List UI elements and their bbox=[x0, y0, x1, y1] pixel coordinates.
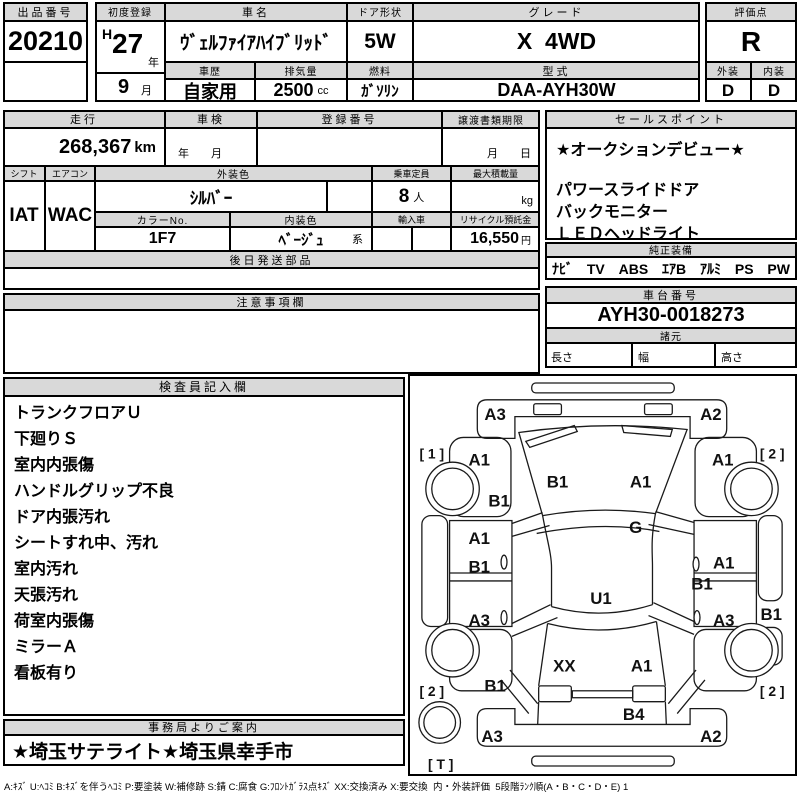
recycle-deposit-value: 16,550円 bbox=[451, 227, 540, 251]
inspector-note: ドア内張汚れ bbox=[14, 505, 394, 531]
spec-length-label: 長さ bbox=[551, 349, 573, 365]
model-code-value: DAA-AYH30W bbox=[413, 79, 700, 102]
exterior-color-empty-cell bbox=[327, 181, 372, 212]
score-value: R bbox=[705, 21, 797, 62]
displacement-number: 2500 bbox=[273, 80, 313, 101]
inspector-note: ミラーＡ bbox=[14, 635, 394, 661]
spare-tire-label: [ T ] bbox=[428, 756, 453, 772]
recycle-fee-unit: 円 bbox=[521, 232, 531, 247]
wheel-rear-right-inner bbox=[731, 629, 773, 671]
displacement-value: 2500cc bbox=[255, 79, 347, 102]
equipment-item: TV bbox=[587, 261, 605, 277]
lot-number-empty-cell bbox=[3, 62, 88, 102]
damage-label: A3 bbox=[484, 405, 505, 424]
color-no-value: 1F7 bbox=[95, 227, 230, 251]
transfer-deadline-label: 譲渡書類期限 bbox=[442, 110, 540, 128]
car-name-label: 車名 bbox=[165, 2, 347, 21]
year-value: 27 bbox=[112, 28, 143, 60]
front-bumper-detail-left bbox=[534, 404, 562, 415]
damage-label: A2 bbox=[700, 405, 722, 424]
score-label: 評価点 bbox=[705, 2, 797, 21]
damage-label: A2 bbox=[700, 727, 722, 746]
windshield bbox=[519, 426, 687, 516]
spec-width-label: 幅 bbox=[638, 349, 649, 365]
history-value: 自家用 bbox=[165, 79, 255, 102]
lot-number-value: 20210 bbox=[3, 21, 88, 62]
chassis-number-value: AYH30-0018273 bbox=[545, 303, 797, 328]
mileage-value: 268,367km bbox=[3, 128, 165, 166]
legend-text: A:ｷｽﾞ U:ﾍｺﾐ B:ｷｽﾞを伴うﾍｺﾐ P:要塗装 W:補修跡 S:錆 … bbox=[4, 779, 796, 793]
inspector-label: 検査員記入欄 bbox=[3, 377, 405, 396]
damage-label: G bbox=[629, 518, 642, 537]
model-code-label: 型式 bbox=[413, 62, 700, 79]
spec-height-label: 高さ bbox=[721, 349, 743, 365]
capacity-label: 乗車定員 bbox=[372, 166, 451, 181]
damage-label: A3 bbox=[469, 611, 491, 630]
capacity-number: 8 bbox=[399, 186, 410, 208]
equipment-item: ｴｱB bbox=[662, 259, 686, 279]
exterior-color-value: ｼﾙﾊﾞｰ bbox=[95, 181, 327, 212]
tail-light-right bbox=[633, 686, 666, 702]
sales-point: ＬＥＤヘッドライト bbox=[556, 220, 700, 240]
recycle-deposit-label: リサイクル預託金 bbox=[451, 212, 540, 227]
displacement-unit: cc bbox=[318, 85, 329, 97]
sales-points-body: ★オークションデビュー★ パワースライドドア バックモニター ＬＥＤヘッドライト bbox=[545, 128, 797, 240]
later-parts-label: 後日発送部品 bbox=[3, 251, 540, 268]
mileage-unit: km bbox=[134, 139, 156, 156]
sales-point: パワースライドドア bbox=[556, 176, 699, 200]
front-top-strip bbox=[532, 383, 675, 393]
tail-light-left bbox=[539, 686, 572, 702]
grade-label: グレード bbox=[413, 2, 700, 21]
shaken-value: 年 月 bbox=[165, 128, 257, 166]
front-bumper bbox=[477, 400, 726, 439]
sales-point: バックモニター bbox=[556, 198, 668, 222]
interior-color-suffix: 系 bbox=[352, 231, 363, 247]
registration-number-label: 登録番号 bbox=[257, 110, 442, 128]
equipment-item: PW bbox=[767, 261, 790, 277]
door-handle-front-left bbox=[501, 555, 507, 569]
door-shape-value: 5W bbox=[347, 21, 413, 62]
max-load-value: kg bbox=[451, 181, 540, 212]
import-label: 輸入車 bbox=[372, 212, 451, 227]
color-no-label: カラーNo. bbox=[95, 212, 230, 227]
sales-points-label: セールスポイント bbox=[545, 110, 797, 128]
month-unit: 月 bbox=[141, 82, 152, 98]
damage-label: A1 bbox=[469, 451, 491, 470]
lot-number-label: 出品番号 bbox=[3, 2, 88, 21]
grade-value: X 4WD bbox=[413, 21, 700, 62]
equipment-item: ｱﾙﾐ bbox=[700, 259, 721, 279]
interior-color-name: ﾍﾞｰｼﾞｭ bbox=[278, 229, 323, 250]
spec-width-cell: 幅 bbox=[632, 343, 715, 368]
hatch-sides bbox=[539, 622, 666, 686]
door-shape-label: ドア形状 bbox=[347, 2, 413, 21]
damage-label: B1 bbox=[484, 676, 505, 695]
rear-window-line-2 bbox=[548, 622, 657, 630]
caution-label: 注意事項欄 bbox=[3, 293, 540, 310]
interior-color-value: ﾍﾞｰｼﾞｭ 系 bbox=[230, 227, 372, 251]
history-label: 車歴 bbox=[165, 62, 255, 79]
damage-label: A3 bbox=[481, 727, 503, 746]
wheel-front-right-inner bbox=[731, 468, 773, 510]
later-parts-empty bbox=[3, 268, 540, 290]
spec-height-cell: 高さ bbox=[715, 343, 797, 368]
fuel-label: 燃料 bbox=[347, 62, 413, 79]
damage-label: A1 bbox=[713, 554, 735, 573]
equipment-item: ABS bbox=[619, 261, 649, 277]
rocker-right-upper bbox=[758, 516, 782, 601]
damage-label: B4 bbox=[623, 705, 645, 724]
first-registration-year: H 27 年 bbox=[95, 21, 165, 73]
shift-value: IAT bbox=[3, 181, 45, 251]
damage-label: A1 bbox=[469, 529, 491, 548]
damage-label: B1 bbox=[488, 491, 510, 510]
fuel-value: ｶﾞｿﾘﾝ bbox=[347, 79, 413, 102]
mileage-label: 走行 bbox=[3, 110, 165, 128]
transfer-placeholder: 月 日 bbox=[487, 145, 531, 161]
era-letter: H bbox=[102, 26, 112, 42]
wheel-front-left-inner bbox=[432, 468, 474, 510]
car-name-value: ｳﾞｪﾙﾌｧｲｱﾊｲﾌﾞﾘｯﾄﾞ bbox=[165, 21, 347, 62]
office-label: 事務局よりご案内 bbox=[3, 719, 405, 735]
import-value-cell-a bbox=[372, 227, 412, 251]
rocker-left bbox=[422, 516, 448, 627]
exterior-color-label: 外装色 bbox=[95, 166, 372, 181]
sales-point: ★オークションデビュー★ bbox=[556, 136, 745, 160]
tire-label: [ 2 ] bbox=[419, 683, 444, 699]
spec-length-cell: 長さ bbox=[545, 343, 632, 368]
mileage-number: 268,367 bbox=[59, 136, 131, 159]
damage-label: B1 bbox=[547, 472, 568, 491]
body-side-right bbox=[652, 514, 655, 605]
interior-grade: D bbox=[751, 79, 797, 102]
transfer-deadline-value: 月 日 bbox=[442, 128, 540, 166]
car-top-view: A3 A2 [ 1 ] [ 2 ] A1 A1 B1 A1 B1 G A1 B1… bbox=[410, 376, 795, 774]
first-registration-label: 初度登録 bbox=[95, 2, 165, 21]
rear-corner-lines bbox=[501, 670, 705, 714]
damage-label: A1 bbox=[630, 472, 652, 491]
inspector-notes: トランクフロアＵ 下廻りＳ 室内内張傷 ハンドルグリップ不良 ドア内張汚れ シー… bbox=[3, 396, 405, 716]
tail-light-bar bbox=[572, 691, 632, 698]
displacement-label: 排気量 bbox=[255, 62, 347, 79]
equipment-label: 純正装備 bbox=[545, 242, 797, 257]
max-load-unit: kg bbox=[521, 195, 533, 207]
front-bumper-detail-right bbox=[645, 404, 673, 415]
damage-label: A1 bbox=[712, 451, 734, 470]
aircon-value: WAC bbox=[45, 181, 95, 251]
tire-label: [ 2 ] bbox=[760, 445, 785, 461]
tire-label: [ 2 ] bbox=[760, 683, 785, 699]
recycle-fee-number: 16,550 bbox=[470, 230, 519, 248]
door-handle-rear-right bbox=[694, 611, 700, 625]
registration-number-value bbox=[257, 128, 442, 166]
inspector-note: 下廻りＳ bbox=[14, 427, 394, 453]
equipment-item: PS bbox=[735, 261, 754, 277]
door-handle-front-right bbox=[693, 557, 699, 571]
spare-tire-inner bbox=[424, 707, 456, 739]
import-value-cell-b bbox=[412, 227, 451, 251]
shift-label: シフト bbox=[3, 166, 45, 181]
inspector-note: 室内内張傷 bbox=[14, 453, 394, 479]
max-load-label: 最大積載量 bbox=[451, 166, 540, 181]
inspector-note: 看板有り bbox=[14, 661, 394, 687]
damage-label: B1 bbox=[760, 605, 782, 624]
year-unit: 年 bbox=[148, 54, 159, 70]
damage-label: B1 bbox=[469, 558, 491, 577]
rear-bottom-strip bbox=[532, 756, 675, 766]
damage-diagram: A3 A2 [ 1 ] [ 2 ] A1 A1 B1 A1 B1 G A1 B1… bbox=[408, 374, 797, 776]
caution-body bbox=[3, 310, 540, 374]
wheel-rear-left-inner bbox=[432, 629, 474, 671]
chassis-number-label: 車台番号 bbox=[545, 286, 797, 303]
door-handle-rear-left bbox=[501, 611, 507, 625]
exterior-grade: D bbox=[705, 79, 751, 102]
damage-label: A1 bbox=[631, 657, 653, 676]
capacity-value: 8人 bbox=[372, 181, 451, 212]
inspector-note: 室内汚れ bbox=[14, 557, 394, 583]
capacity-unit: 人 bbox=[413, 189, 424, 205]
damage-label: A3 bbox=[713, 611, 735, 630]
equipment-item: ﾅﾋﾞ bbox=[552, 259, 573, 279]
interior-color-label: 内装色 bbox=[230, 212, 372, 227]
shaken-label: 車検 bbox=[165, 110, 257, 128]
damage-label: B1 bbox=[691, 574, 713, 593]
shaken-placeholder: 年 月 bbox=[178, 145, 222, 161]
inspector-note: トランクフロアＵ bbox=[14, 401, 394, 427]
first-registration-month: 9 月 bbox=[95, 73, 165, 102]
damage-label: U1 bbox=[590, 589, 612, 608]
inspector-note: 天張汚れ bbox=[14, 583, 394, 609]
rear-bumper bbox=[477, 709, 726, 747]
body-side-left bbox=[543, 516, 552, 607]
tire-label: [ 1 ] bbox=[419, 445, 444, 461]
month-value: 9 bbox=[118, 76, 129, 99]
auction-sheet: 出品番号 20210 初度登録 H 27 年 9 月 車名 ｳﾞｪﾙﾌｧｲｱﾊｲ… bbox=[0, 0, 800, 800]
specs-label: 諸元 bbox=[545, 328, 797, 343]
office-note: ★埼玉サテライト★埼玉県幸手市 bbox=[3, 735, 405, 766]
equipment-list: ﾅﾋﾞ TV ABS ｴｱB ｱﾙﾐ PS PW bbox=[545, 257, 797, 280]
aircon-label: エアコン bbox=[45, 166, 95, 181]
inspector-note: シートすれ中、汚れ bbox=[14, 531, 394, 557]
hatch-lower-sides bbox=[538, 702, 667, 725]
interior-label: 内装 bbox=[751, 62, 797, 79]
exterior-label: 外装 bbox=[705, 62, 751, 79]
inspector-note: 荷室内張傷 bbox=[14, 609, 394, 635]
inspector-note: ハンドルグリップ不良 bbox=[14, 479, 394, 505]
damage-label: XX bbox=[553, 657, 576, 676]
